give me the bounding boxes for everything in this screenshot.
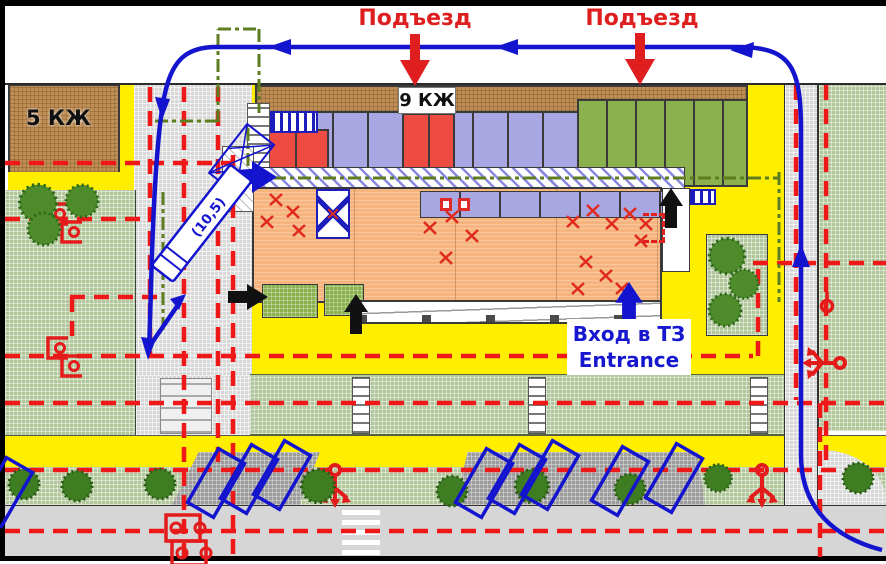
- red-squares-mark: [458, 198, 470, 211]
- bike-rack-east: [690, 189, 716, 205]
- planter-east: [706, 234, 768, 336]
- bush-strip: [5, 467, 886, 505]
- dock-strip: [222, 146, 254, 212]
- units-green-south-1: [262, 284, 318, 318]
- units-red-west: [263, 129, 329, 172]
- sidewalk-5kzh-bottom: [8, 172, 134, 190]
- green-band-south: [250, 374, 788, 435]
- lawn-top-left: [5, 190, 136, 436]
- site-top-edge: [5, 83, 886, 85]
- label-entrance: Вход в ТЗ Entrance: [567, 319, 691, 375]
- label-entrance-en: Entrance: [567, 347, 691, 373]
- road-vertical: [784, 84, 818, 505]
- road-bottom: [5, 505, 886, 557]
- walkway-west: [160, 378, 212, 434]
- road-yellow-band: [5, 435, 886, 467]
- room-white-east: [662, 188, 690, 272]
- shaft-elevator: [316, 189, 350, 239]
- units-purple-row2: [420, 191, 664, 218]
- walkway-stairs-1: [352, 377, 370, 434]
- utility-bracket-dashed: [643, 213, 665, 243]
- loading-yard-pavement: [130, 84, 252, 376]
- label-9kzh: 9 КЖ: [398, 87, 456, 114]
- driveway-arrows: [400, 33, 655, 86]
- bike-rack-west: [270, 111, 318, 133]
- label-entrance-ru: Вход в ТЗ: [567, 321, 691, 347]
- lawn-right: [818, 84, 886, 431]
- walkway-stairs-3: [750, 377, 768, 434]
- label-5kzh: 5 КЖ: [26, 106, 110, 130]
- label-driveway-1: Подъезд: [352, 6, 478, 31]
- frame-bottom: [0, 556, 886, 561]
- walkway-stairs-2: [528, 377, 546, 434]
- red-squares-mark: [440, 198, 452, 211]
- pedestrian-crosswalk: [342, 507, 380, 555]
- units-red-center: [402, 113, 455, 171]
- label-driveway-2: Подъезд: [577, 6, 707, 31]
- site-plan: (10,5) Подъезд Подъезд 9 КЖ 5 КЖ Вход в …: [0, 0, 886, 564]
- parking-pad-2: [455, 452, 705, 505]
